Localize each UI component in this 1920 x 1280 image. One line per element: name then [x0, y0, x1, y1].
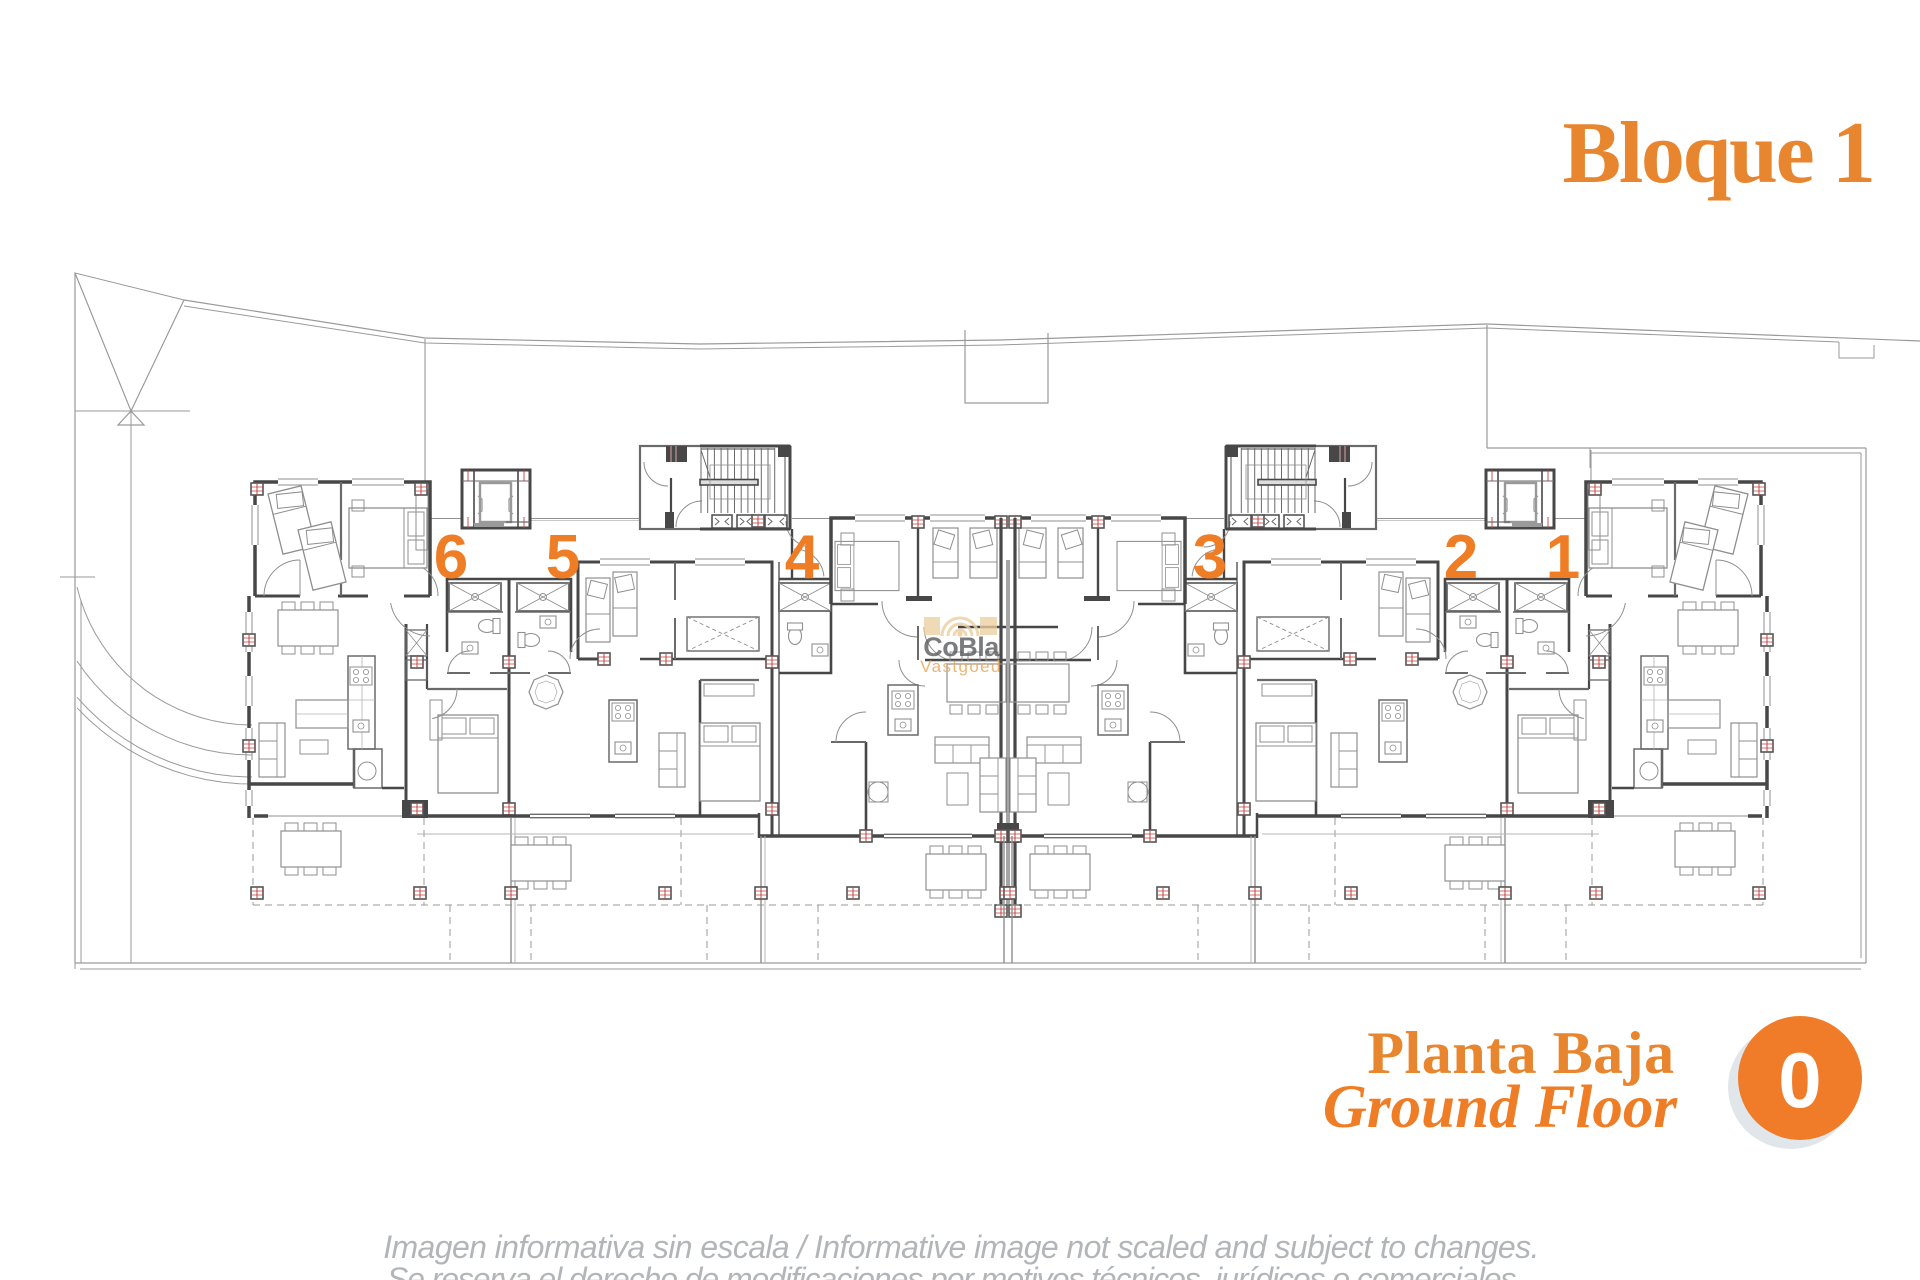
svg-text:1: 1 [1546, 523, 1580, 592]
svg-text:4: 4 [785, 523, 820, 592]
svg-text:Bloque 1: Bloque 1 [1563, 105, 1874, 202]
svg-text:Imagen informativa sin escala: Imagen informativa sin escala / Informat… [383, 1229, 1539, 1265]
svg-text:Ground Floor: Ground Floor [1323, 1074, 1679, 1141]
svg-text:0: 0 [1778, 1036, 1821, 1124]
svg-text:2: 2 [1444, 523, 1478, 592]
svg-text:Vastgoed: Vastgoed [920, 657, 1002, 676]
svg-text:Se reserva el derecho de modif: Se reserva el derecho de modificaciones … [387, 1261, 1523, 1280]
svg-text:6: 6 [434, 523, 468, 592]
svg-text:3: 3 [1193, 523, 1227, 592]
svg-text:5: 5 [546, 523, 580, 592]
